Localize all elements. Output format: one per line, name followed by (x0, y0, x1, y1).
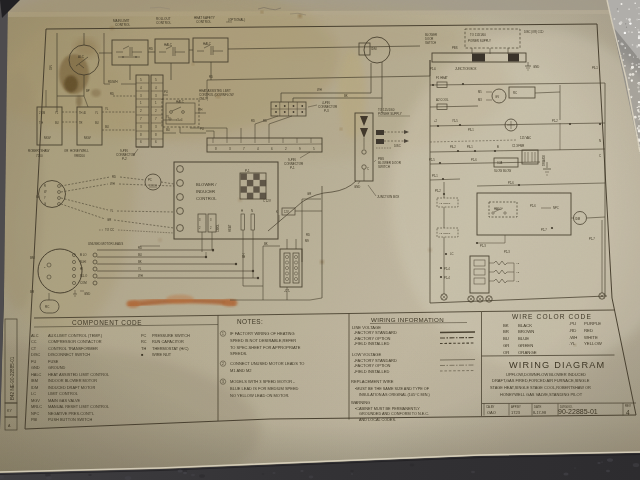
svg-text:PC: PC (148, 178, 152, 182)
svg-text:CONTROL: CONTROL (156, 21, 171, 25)
svg-text:BM: BM (30, 256, 35, 260)
svg-text:DATE: DATE (534, 405, 541, 409)
svg-text:P4-2: P4-2 (450, 145, 456, 149)
svg-text:P-2: P-2 (122, 157, 127, 161)
svg-text:•CABINET MUST BE PERMANENTLY: •CABINET MUST BE PERMANENTLY (355, 407, 420, 411)
svg-text:GR: GR (49, 65, 53, 70)
svg-text:WH: WH (110, 182, 115, 186)
svg-text:P5-2: P5-2 (435, 189, 441, 193)
svg-text:P5-1: P5-1 (432, 174, 438, 178)
svg-text:P1-6: P1-6 (430, 67, 436, 71)
svg-text:P3-1: P3-1 (468, 128, 474, 132)
svg-text:MODELS WITH 3 SPEED MOTOR -: MODELS WITH 3 SPEED MOTOR - (230, 379, 295, 384)
svg-text:CC: CC (31, 339, 37, 344)
svg-text:RUN CAPACITOR: RUN CAPACITOR (152, 339, 184, 344)
svg-text:OAO: OAO (487, 410, 496, 415)
svg-text:RD/WH: RD/WH (108, 80, 117, 84)
svg-text:CONNECT UNUSED MOTOR LEADS TO: CONNECT UNUSED MOTOR LEADS TO (230, 361, 304, 366)
svg-text:x3-x4: x3-x4 (176, 118, 183, 122)
svg-text:HALC: HALC (31, 372, 42, 377)
svg-text:RD: RD (149, 47, 153, 51)
svg-text:SLOW BLOW: SLOW BLOW (494, 169, 512, 173)
svg-text:B42 NE-90-22885-01: B42 NE-90-22885-01 (10, 356, 15, 400)
svg-text:M3: M3 (478, 98, 482, 102)
svg-text:SWITCH: SWITCH (378, 165, 390, 169)
svg-text:ROBERTSHAW: ROBERTSHAW (28, 149, 50, 153)
svg-text:WIRING INFORMATION: WIRING INFORMATION (371, 316, 444, 323)
svg-text:B LO: B LO (80, 253, 87, 257)
svg-text:PUSH BUTTON SWITCH: PUSH BUTTON SWITCH (48, 417, 92, 422)
svg-text:BK: BK (503, 323, 509, 328)
svg-text:RD: RD (110, 92, 114, 96)
svg-text:BU: BU (503, 336, 509, 341)
svg-text:GND: GND (84, 292, 90, 296)
svg-text:GREEN: GREEN (518, 343, 533, 348)
svg-text:TO CC: TO CC (105, 228, 115, 232)
svg-text:2: 2 (222, 362, 224, 366)
svg-text:BP: BP (86, 89, 90, 93)
svg-text:YL: YL (105, 107, 109, 111)
svg-text:1: 1 (222, 332, 224, 336)
svg-text:M5: M5 (478, 90, 482, 94)
svg-text:CT: CT (31, 346, 37, 351)
svg-text:RC: RC (513, 91, 517, 95)
svg-text:INSULATION AS ORIGINAL (105°C: INSULATION AS ORIGINAL (105°C MIN.) (359, 393, 430, 397)
svg-text:BU: BU (55, 121, 59, 125)
svg-text:6x: 6x (36, 195, 40, 199)
svg-text:GR: GR (307, 192, 311, 196)
svg-text:3.2A: 3.2A (497, 161, 503, 165)
svg-text:BLACK: BLACK (518, 323, 532, 328)
svg-text:MANUAL RESET LIMIT CONTROL: MANUAL RESET LIMIT CONTROL (48, 404, 110, 409)
svg-text:BK: BK (264, 242, 268, 246)
svg-text:IF FACTORY WIRING OF HEATING: IF FACTORY WIRING OF HEATING (230, 331, 295, 336)
svg-text:90-22885-01: 90-22885-01 (558, 408, 598, 415)
svg-text:Y5-5: Y5-5 (452, 119, 458, 123)
svg-text:BR: BR (503, 329, 509, 334)
svg-text:MGV: MGV (31, 398, 40, 403)
svg-text:RD: RD (112, 175, 116, 179)
svg-text:TO SPEC.SHEET FOR APPROPRIATE: TO SPEC.SHEET FOR APPROPRIATE (230, 345, 301, 350)
svg-text:DRAFT,GAS FIRED,FORCED AIR FUR: DRAFT,GAS FIRED,FORCED AIR FURNACE,SINGL… (492, 378, 590, 383)
svg-text:WIRING DIAGRAM: WIRING DIAGRAM (509, 360, 605, 370)
svg-text:YL: YL (166, 115, 170, 119)
svg-text:•MUST BE THE SAME SIZE AND TYP: •MUST BE THE SAME SIZE AND TYPE OF (355, 387, 430, 391)
svg-text:RD: RD (306, 233, 310, 237)
svg-text:.PU: .PU (569, 321, 576, 326)
svg-text:GR: GR (107, 218, 111, 222)
svg-text:MGV: MGV (84, 136, 91, 140)
svg-text:CONTROL TRANSFORMER: CONTROL TRANSFORMER (48, 346, 98, 351)
svg-text:STAGE HEAT,SINGLE STAGE COOL,R: STAGE HEAT,SINGLE STAGE COOL,ROBERTSHAW … (490, 385, 591, 390)
svg-text:LINE VOLTAGE: LINE VOLTAGE (352, 325, 381, 330)
svg-text:WH: WH (242, 254, 246, 258)
svg-text:4: 4 (626, 409, 630, 416)
svg-text:UNUSED MOTOR LEADS: UNUSED MOTOR LEADS (88, 242, 123, 246)
svg-text:COMPONENT CODE: COMPONENT CODE (72, 319, 142, 326)
svg-text:WH: WH (317, 88, 322, 92)
svg-text:.WH: .WH (569, 335, 577, 340)
svg-text:HONEYWELL GAS VALVE,STANDING P: HONEYWELL GAS VALVE,STANDING PILOT (500, 392, 583, 397)
svg-text:ORANGE: ORANGE (518, 350, 537, 355)
svg-text:P2-6: P2-6 (530, 204, 536, 208)
svg-text:BU: BU (166, 128, 170, 132)
svg-text:M-HI: M-HI (80, 260, 86, 264)
svg-text:SWITCH: SWITCH (425, 41, 436, 45)
svg-text:WIRE NUT: WIRE NUT (152, 352, 172, 357)
svg-text:7200: 7200 (36, 154, 43, 158)
svg-text:IDM: IDM (575, 217, 581, 221)
svg-text:RD: RD (138, 246, 142, 250)
svg-text:ALC: ALC (31, 333, 39, 338)
svg-text:MAIN GAS VALVE: MAIN GAS VALVE (48, 398, 80, 403)
svg-text:-FIELD INSTALLED: -FIELD INSTALLED (354, 369, 389, 374)
svg-text:NOTES:: NOTES: (237, 318, 263, 325)
svg-text:THERMOSTAT (H/C): THERMOSTAT (H/C) (152, 346, 189, 351)
svg-text:AND LOCAL CODES.: AND LOCAL CODES. (359, 418, 396, 422)
svg-text:POWER SUPPLY: POWER SUPPLY (468, 39, 491, 43)
svg-text:HONEYWELL: HONEYWELL (70, 149, 89, 153)
svg-text:RD: RD (209, 75, 213, 79)
svg-text:GR: GR (503, 343, 509, 348)
svg-text:INDUCER: INDUCER (196, 189, 215, 194)
svg-text:Y5-WRLC: Y5-WRLC (439, 232, 450, 235)
svg-text:YL: YL (110, 209, 114, 213)
svg-text:P2-6: P2-6 (508, 181, 514, 185)
svg-text:APP.BY: APP.BY (511, 405, 521, 409)
svg-text:WH: WH (198, 108, 202, 112)
svg-text:TR: TR (79, 121, 83, 125)
svg-text:RED: RED (584, 328, 593, 333)
svg-text:R: R (44, 184, 46, 188)
svg-text:T H: T H (39, 121, 43, 125)
svg-text:RC: RC (141, 339, 147, 344)
svg-text:P-1: P-1 (245, 169, 250, 173)
svg-text:YL: YL (138, 267, 142, 271)
svg-text:N: N (599, 139, 601, 143)
svg-text:HALC: HALC (203, 42, 212, 46)
svg-text:.RD: .RD (569, 328, 576, 333)
svg-text:-FIELD INSTALLED: -FIELD INSTALLED (354, 341, 389, 346)
svg-text:-FACTORY STANDARD: -FACTORY STANDARD (354, 358, 397, 363)
svg-text:(OPTIONAL): (OPTIONAL) (228, 18, 245, 22)
svg-text:Y: Y (44, 196, 46, 200)
svg-text:TH: TH (141, 346, 146, 351)
svg-text:H: H (241, 209, 243, 213)
svg-text:M9: M9 (305, 239, 309, 243)
svg-text:P2-7: P2-7 (541, 228, 547, 232)
svg-text:OR: OR (64, 149, 68, 153)
svg-text:IDM: IDM (31, 385, 38, 390)
svg-text:BLOWER /: BLOWER / (196, 182, 217, 187)
svg-text:LIMIT CONTROL: LIMIT CONTROL (48, 391, 79, 396)
svg-text:YL: YL (95, 111, 99, 115)
svg-text:NPC: NPC (553, 206, 559, 210)
svg-text:3: 3 (222, 380, 224, 384)
svg-text:2 KM: 2 KM (39, 111, 45, 115)
svg-text:DISCONNECT SWITCH: DISCONNECT SWITCH (48, 352, 90, 357)
svg-text:P-1: P-1 (290, 166, 295, 170)
svg-text:BLUE: BLUE (518, 336, 529, 341)
svg-text:P-3: P-3 (324, 109, 329, 113)
svg-text:ALC: ALC (78, 55, 85, 59)
svg-text:P2-3: P2-3 (504, 250, 510, 254)
svg-text:KY: KY (7, 409, 12, 413)
svg-text:COMPRESSOR CONTACTOR: COMPRESSOR CONTACTOR (48, 339, 102, 344)
svg-text:P6-1: P6-1 (592, 66, 598, 70)
svg-text:ONLY): ONLY) (199, 97, 208, 101)
svg-text:CA.BY: CA.BY (486, 405, 495, 409)
svg-text:VR8200: VR8200 (74, 154, 85, 158)
svg-text:CONTROL: CONTROL (196, 196, 217, 201)
svg-text:-FACTORY OPTION: -FACTORY OPTION (354, 363, 391, 368)
svg-text:P1-7: P1-7 (589, 237, 595, 241)
svg-text:12V: 12V (284, 210, 289, 214)
svg-text:HI: HI (80, 267, 83, 271)
svg-text:GND: GND (354, 185, 360, 189)
svg-text:P1-2: P1-2 (552, 119, 558, 123)
svg-text:F1 HEAT: F1 HEAT (436, 76, 448, 80)
svg-text:HEAT ASSISTED LIMIT CONTROL: HEAT ASSISTED LIMIT CONTROL (48, 372, 110, 377)
svg-text:BU: BU (138, 253, 142, 257)
svg-text:PURPLE: PURPLE (584, 321, 601, 326)
svg-text:P2-4: P2-4 (444, 267, 450, 271)
svg-text:-FACTORY OPTION: -FACTORY OPTION (354, 336, 391, 341)
svg-text:GND: GND (31, 365, 40, 370)
svg-text:NPC: NPC (31, 411, 39, 416)
svg-text:WH: WH (138, 274, 143, 278)
svg-text:RD: RD (251, 119, 255, 123)
svg-text:REV: REV (625, 404, 631, 408)
svg-text:P1-3: P1-3 (480, 244, 486, 248)
svg-text:TO 115/1/60: TO 115/1/60 (470, 33, 486, 37)
svg-text:CONTROL: CONTROL (196, 20, 211, 24)
svg-text:BK: BK (138, 260, 142, 264)
svg-text:AUX.LIMIT CONTROL (TEMP.): AUX.LIMIT CONTROL (TEMP.) (48, 333, 103, 338)
svg-text:OR: OR (503, 350, 509, 355)
svg-text:B: B (497, 145, 499, 149)
svg-text:P1-6: P1-6 (471, 158, 477, 162)
svg-text:INDOOR BLOWER MOTOR: INDOOR BLOWER MOTOR (48, 378, 97, 383)
svg-text:1723: 1723 (511, 410, 521, 415)
svg-text:NEGATIVE PRES.CONT'L: NEGATIVE PRES.CONT'L (48, 411, 95, 416)
svg-text:WIRE COLOR CODE: WIRE COLOR CODE (512, 313, 592, 320)
svg-text:PU: PU (164, 90, 168, 94)
svg-text:BROWN: BROWN (518, 329, 534, 334)
svg-text:.YL: .YL (569, 341, 576, 346)
svg-text:LOW VOLTAGE: LOW VOLTAGE (352, 352, 381, 357)
svg-text:INDUCED DRAFT MOTOR: INDUCED DRAFT MOTOR (48, 385, 95, 390)
svg-text:UPFLOW,DOWNFLOW BLOWER INDUCED: UPFLOW,DOWNFLOW BLOWER INDUCED (506, 372, 586, 377)
svg-text:GND: GND (533, 65, 539, 69)
svg-text:WARNING: WARNING (351, 400, 370, 405)
svg-text:115 VAC: 115 VAC (520, 136, 531, 140)
svg-text:MGV: MGV (44, 136, 51, 140)
svg-text:SPEED IS NOT DESIRABLE,REFER: SPEED IS NOT DESIRABLE,REFER (230, 338, 296, 343)
svg-text:YELLOW: YELLOW (584, 341, 603, 346)
svg-text:MRLC: MRLC (31, 404, 42, 409)
svg-text:GV: GV (495, 95, 499, 99)
svg-text:PU: PU (200, 127, 204, 131)
svg-text:BU: BU (95, 121, 99, 125)
svg-text:P2-5: P2-5 (429, 158, 435, 162)
svg-text:+2: +2 (434, 119, 438, 123)
svg-text:P4-1: P4-1 (467, 145, 473, 149)
svg-text:C 12V: C 12V (263, 199, 271, 203)
svg-text:GROUNDED AND CONFORM TO N.E.C.: GROUNDED AND CONFORM TO N.E.C. (359, 412, 429, 416)
svg-text:Y5-WRLC: Y5-WRLC (439, 202, 450, 205)
svg-text:DISC: DISC (394, 144, 401, 148)
svg-text:POWER SUPPLY: POWER SUPPLY (378, 112, 402, 116)
svg-text:M-LO: M-LO (80, 274, 88, 278)
svg-text:TH 40: TH 40 (79, 111, 87, 115)
svg-text:WHITE: WHITE (584, 335, 598, 340)
svg-text:FU: FU (31, 359, 36, 364)
svg-text:YL: YL (55, 111, 59, 115)
svg-text:BU: BU (105, 125, 109, 129)
svg-text:NO YELLOW LEAD ON MOTOR.: NO YELLOW LEAD ON MOTOR. (230, 393, 289, 398)
svg-text:M1 AND M2: M1 AND M2 (230, 368, 252, 373)
svg-text:CONTROL: CONTROL (115, 23, 130, 27)
svg-text:PC: PC (141, 333, 147, 338)
svg-text:REPLACEMENT WIRE: REPLACEMENT WIRE (351, 379, 394, 384)
svg-text:PBS: PBS (452, 46, 458, 50)
svg-text:DISC (OR) CCD: DISC (OR) CCD (524, 30, 544, 34)
svg-text:GROUND: GROUND (48, 365, 65, 370)
svg-text:SPEEDS.: SPEEDS. (230, 351, 247, 356)
svg-text:PBI: PBI (31, 417, 37, 422)
svg-text:HEAT: HEAT (228, 224, 232, 232)
svg-text:P1-4: P1-4 (444, 276, 450, 280)
svg-text:BK: BK (344, 94, 348, 98)
svg-text:FUSE: FUSE (48, 359, 59, 364)
svg-text:N: N (251, 209, 253, 213)
svg-text:JUNCTION BOX: JUNCTION BOX (377, 195, 399, 199)
svg-text:C: C (367, 167, 369, 171)
svg-text:DISC: DISC (31, 352, 40, 357)
svg-text:ORANGE: ORANGE (542, 154, 546, 166)
svg-text:LC: LC (450, 252, 454, 256)
svg-text:A2 COOL: A2 COOL (436, 98, 449, 102)
svg-text:C1 XFMR: C1 XFMR (512, 144, 524, 148)
svg-text:COM: COM (80, 281, 87, 285)
svg-text:HALC: HALC (176, 100, 185, 104)
svg-text:C: C (599, 154, 601, 158)
svg-text:JUNCTION BOX: JUNCTION BOX (455, 67, 477, 71)
svg-text:G: G (44, 202, 46, 206)
svg-text:8-17-98: 8-17-98 (533, 411, 546, 415)
svg-text:PRESSURE SWITCH: PRESSURE SWITCH (152, 333, 190, 338)
svg-text:IBM: IBM (31, 378, 38, 383)
svg-text:IDM: IDM (371, 47, 377, 51)
svg-text:LC: LC (31, 391, 36, 396)
svg-text:COOL: COOL (216, 224, 220, 232)
svg-text:BLUE LEAD IS FOR MEDIUM SPEED: BLUE LEAD IS FOR MEDIUM SPEED (230, 386, 299, 391)
svg-text:-FACTORY STANDARD: -FACTORY STANDARD (354, 330, 397, 335)
